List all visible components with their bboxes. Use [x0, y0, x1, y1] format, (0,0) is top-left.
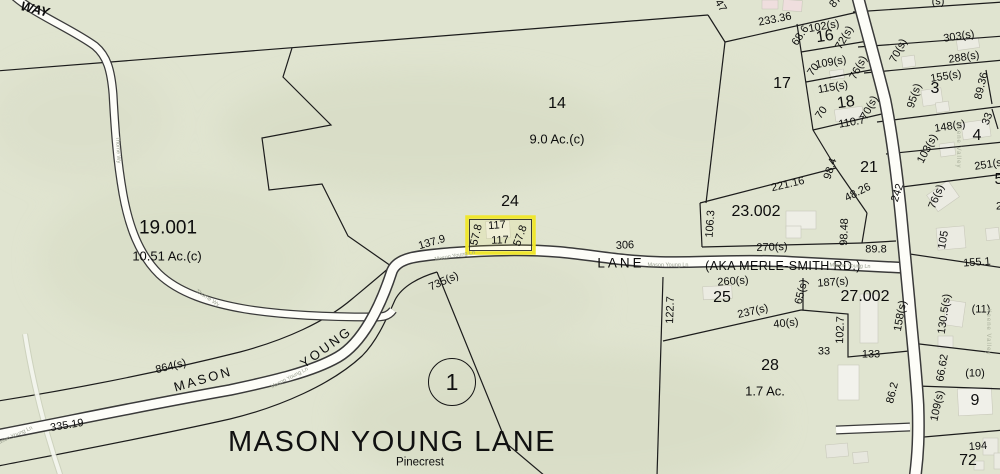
road-name-small-label: Mason Young Ln [648, 263, 689, 269]
place-name-label: Pinecrest [396, 457, 444, 469]
dimension-label: 117 [491, 235, 509, 247]
parcel-number-label: 19.001 [139, 219, 197, 238]
dimension-label: 133 [862, 350, 880, 361]
dimension-label: 98.48 [839, 218, 851, 246]
road-name-label: LANE [597, 256, 644, 270]
dimension-label: (10) [965, 369, 985, 380]
parcel-number-label: 14 [548, 96, 566, 112]
dimension-label: 117 [488, 220, 506, 232]
parcel-number-label: 28 [761, 358, 779, 374]
tax-parcel-map: WAY19.00110.51 Ac.(c)149.0 Ac.(c)2417161… [0, 0, 1000, 474]
parcel-number-label: 23.002 [732, 204, 781, 220]
acreage-label: 1.7 Ac. [745, 385, 785, 398]
street-title: MASON YOUNG LANE [228, 428, 556, 457]
lot-circle-number: 1 [446, 369, 459, 396]
dimension-label: 33 [818, 347, 830, 358]
parcel-number-label: 9 [971, 393, 980, 409]
dimension-label: 89.8 [865, 245, 886, 256]
dimension-label: 122.7 [665, 296, 677, 324]
parcel-number-label: 5 [995, 172, 1000, 188]
road-name-small-label: Thorne Wy [114, 136, 121, 163]
dimension-label: 260(s) [717, 275, 749, 288]
area-name-small-label: Keene Valley [955, 122, 961, 169]
area-name-small-label: Keene Valley [985, 309, 991, 356]
dimension-label: 187(s) [817, 276, 849, 289]
dimension-label: 270(s) [756, 242, 788, 254]
dimension-label: 306 [616, 240, 635, 252]
dimension-label: 155.1 [963, 257, 991, 270]
dimension-label: (s) [932, 0, 945, 8]
parcel-number-label: 24 [501, 194, 519, 210]
parcel-number-label: 18 [836, 94, 856, 112]
acreage-label: 10.51 Ac.(c) [132, 250, 201, 263]
parcel-number-label: 72 [959, 453, 977, 469]
acreage-label: 9.0 Ac.(c) [530, 133, 585, 146]
dimension-label: 2 [996, 202, 1000, 213]
dimension-label: 102.7 [835, 316, 847, 344]
parcel-number-label: 4 [973, 128, 982, 144]
parcel-number-label: 27.002 [841, 289, 890, 305]
dimension-label: 106.3 [705, 210, 718, 238]
parcel-number-label: 21 [860, 160, 878, 176]
parcel-number-label: 17 [773, 76, 791, 92]
dimension-label: 194 [968, 441, 987, 453]
lot-circle-marker: 1 [428, 358, 476, 406]
parcel-number-label: 25 [713, 290, 731, 306]
